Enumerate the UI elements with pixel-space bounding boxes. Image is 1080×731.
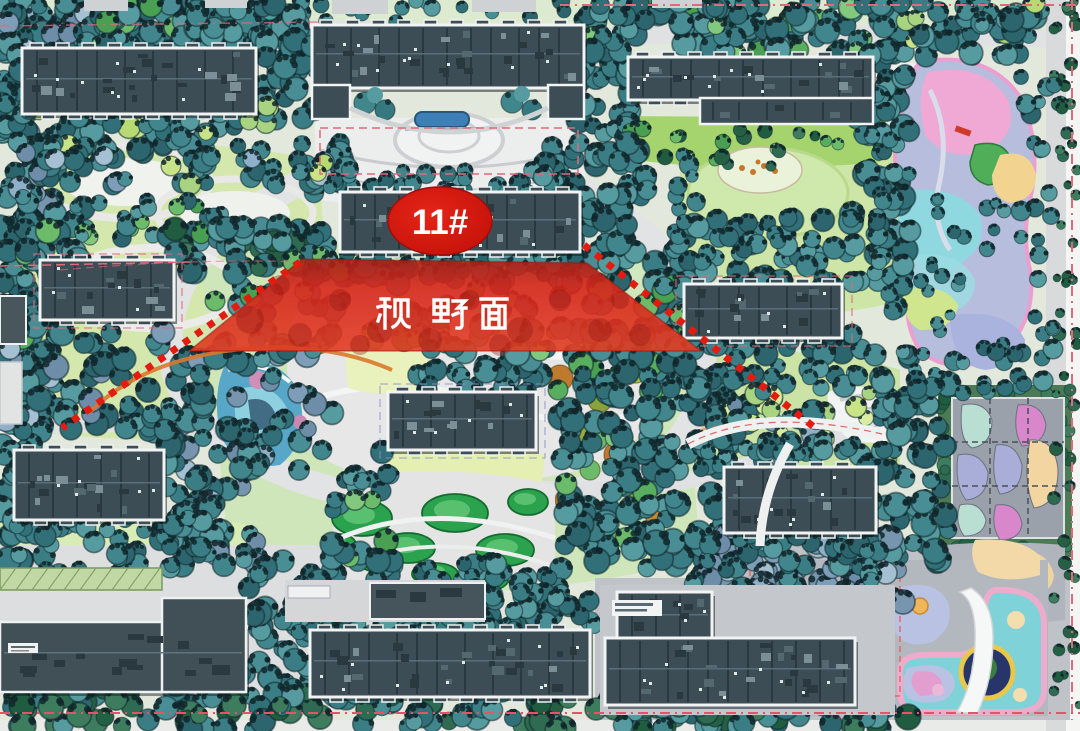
svg-text:11#: 11# <box>412 203 468 242</box>
